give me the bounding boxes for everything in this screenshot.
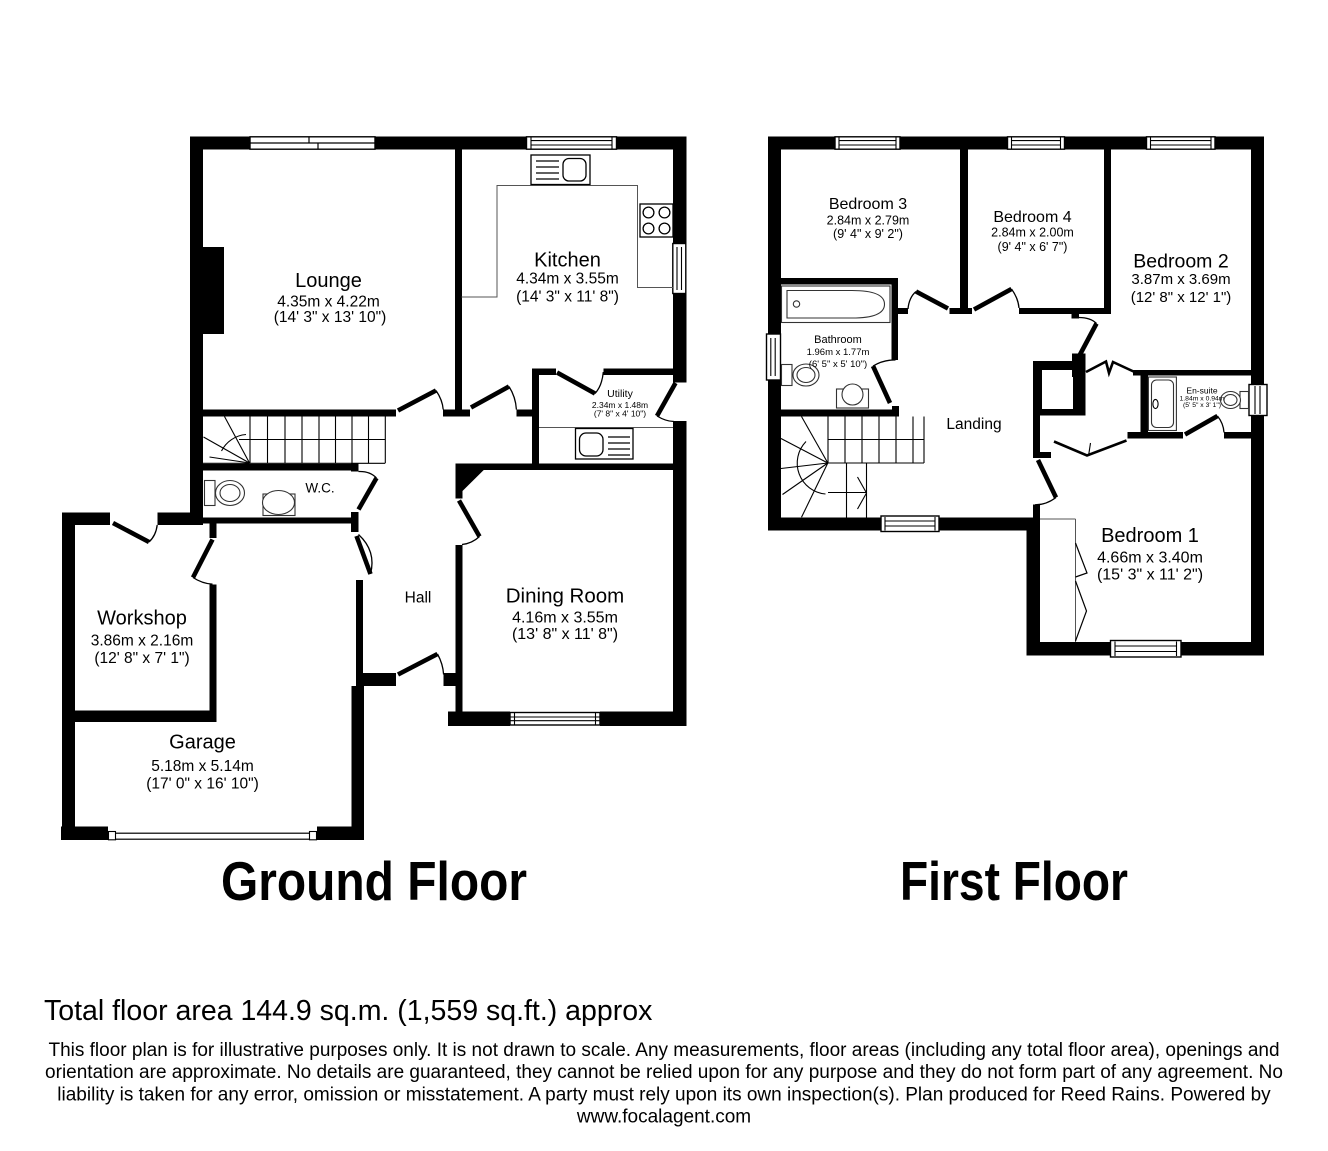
svg-text:(6' 5" x 5' 10"): (6' 5" x 5' 10") — [809, 359, 867, 370]
svg-text:Utility: Utility — [607, 388, 633, 400]
svg-text:(5' 5" x 3' 1"): (5' 5" x 3' 1") — [1183, 402, 1221, 409]
svg-text:Workshop: Workshop — [97, 608, 187, 630]
svg-text:Dining Room: Dining Room — [506, 585, 625, 608]
svg-text:orientation are approximate. N: orientation are approximate. No details … — [45, 1062, 1283, 1083]
svg-text:4.34m x 3.55m: 4.34m x 3.55m — [516, 271, 619, 288]
svg-text:4.35m x 4.22m: 4.35m x 4.22m — [277, 294, 380, 311]
svg-text:Kitchen: Kitchen — [534, 250, 601, 272]
svg-text:(9' 4" x 6' 7"): (9' 4" x 6' 7") — [998, 240, 1068, 254]
svg-text:(14' 3" x 11' 8"): (14' 3" x 11' 8") — [516, 289, 619, 306]
svg-text:4.16m x 3.55m: 4.16m x 3.55m — [512, 610, 618, 627]
svg-text:Landing: Landing — [946, 416, 1001, 433]
svg-text:Ground Floor: Ground Floor — [221, 851, 527, 912]
svg-text:Total floor area 144.9 sq.m. (: Total floor area 144.9 sq.m. (1,559 sq.f… — [44, 995, 652, 1027]
svg-text:(12' 8" x 12' 1"): (12' 8" x 12' 1") — [1131, 289, 1232, 306]
svg-text:www.focalagent.com: www.focalagent.com — [576, 1107, 751, 1128]
svg-text:Bedroom 2: Bedroom 2 — [1133, 251, 1228, 273]
svg-text:Garage: Garage — [169, 732, 236, 754]
svg-text:Bathroom: Bathroom — [814, 334, 862, 346]
svg-text:W.C.: W.C. — [305, 481, 334, 496]
svg-text:(15' 3" x 11' 2"): (15' 3" x 11' 2") — [1097, 567, 1203, 584]
svg-text:3.86m x 2.16m: 3.86m x 2.16m — [91, 633, 194, 650]
svg-text:(12' 8" x 7' 1"): (12' 8" x 7' 1") — [94, 650, 189, 667]
svg-text:5.18m x 5.14m: 5.18m x 5.14m — [151, 758, 254, 775]
svg-text:Bedroom 3: Bedroom 3 — [829, 196, 907, 213]
svg-text:Bedroom 4: Bedroom 4 — [993, 209, 1071, 226]
svg-text:(7' 8" x 4' 10"): (7' 8" x 4' 10") — [594, 409, 646, 419]
svg-text:(13' 8" x 11' 8"): (13' 8" x 11' 8") — [512, 626, 618, 643]
svg-text:2.84m x 2.00m: 2.84m x 2.00m — [991, 226, 1074, 240]
svg-text:(9' 4" x 9' 2"): (9' 4" x 9' 2") — [833, 227, 903, 241]
svg-text:liability is taken for any err: liability is taken for any error, omissi… — [57, 1085, 1271, 1106]
svg-text:(14' 3" x 13' 10"): (14' 3" x 13' 10") — [274, 309, 387, 326]
svg-text:This floor plan is for illustr: This floor plan is for illustrative purp… — [48, 1040, 1279, 1061]
svg-text:First Floor: First Floor — [900, 851, 1128, 912]
svg-text:Hall: Hall — [405, 590, 432, 607]
svg-text:2.84m x 2.79m: 2.84m x 2.79m — [827, 214, 910, 228]
svg-text:3.87m x 3.69m: 3.87m x 3.69m — [1131, 271, 1230, 288]
svg-text:Bedroom 1: Bedroom 1 — [1101, 525, 1199, 547]
svg-text:1.96m x 1.77m: 1.96m x 1.77m — [807, 347, 870, 358]
svg-text:(17' 0" x 16' 10"): (17' 0" x 16' 10") — [146, 776, 259, 793]
svg-text:Lounge: Lounge — [295, 270, 362, 292]
svg-text:En-suite: En-suite — [1186, 386, 1217, 396]
svg-text:4.66m x 3.40m: 4.66m x 3.40m — [1097, 550, 1203, 567]
